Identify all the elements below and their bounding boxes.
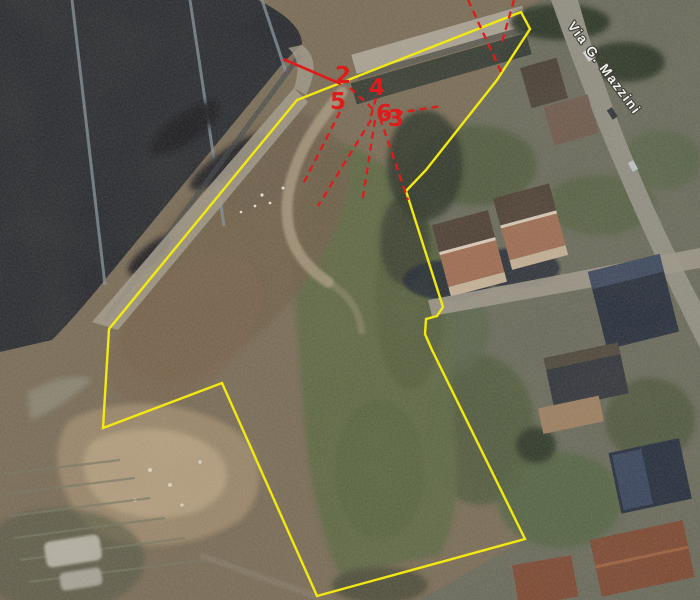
viewpoint-label-4: 4 xyxy=(369,75,385,101)
viewpoint-label-5: 5 xyxy=(330,89,346,115)
viewpoint-label-3: 3 xyxy=(388,106,404,132)
texture-grain xyxy=(0,0,700,600)
viewpoint-label-2: 2 xyxy=(335,63,351,89)
satellite-image: Via G. Mazzini 24563 xyxy=(0,0,700,600)
aerial-map-figure: Via G. Mazzini 24563 xyxy=(0,0,700,600)
